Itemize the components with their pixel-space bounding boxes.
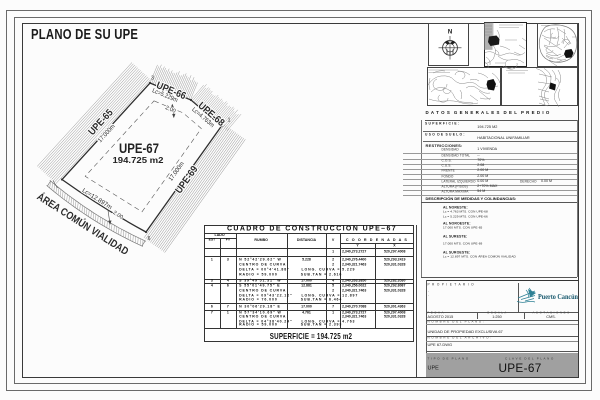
svg-text:N: N (448, 30, 452, 36)
svg-text:Puerto Cancún: Puerto Cancún (538, 293, 578, 301)
